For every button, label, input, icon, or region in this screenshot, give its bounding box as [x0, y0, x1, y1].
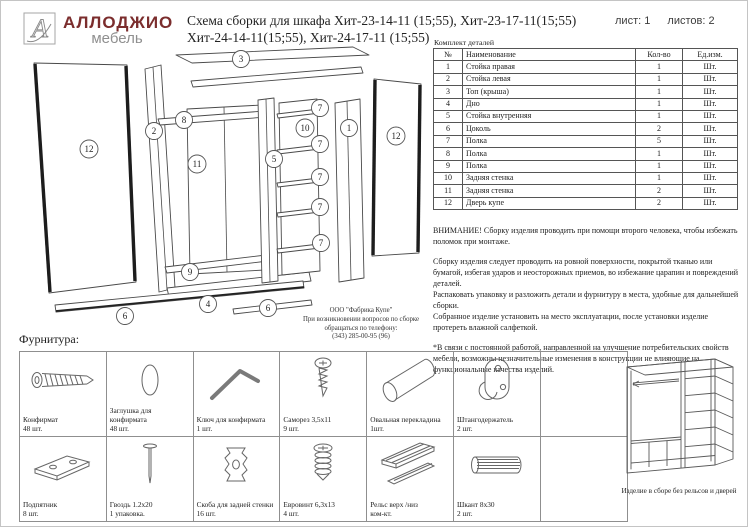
- back-wall-clip-icon: [194, 437, 280, 493]
- part-num: 5: [434, 110, 463, 122]
- part-unit: Шт.: [683, 135, 738, 147]
- hex-key-icon: [194, 352, 280, 408]
- hardware-cell: Подпятник 8 шт.: [20, 437, 107, 522]
- foot-plate-icon: [20, 437, 106, 493]
- manufacturer-contact: ООО "Фабрика Купе" При возникновении воп…: [289, 307, 433, 342]
- col-qty: Кол-во: [636, 49, 683, 61]
- parts-table-section: Комплект деталей № Наименование Кол-во Е…: [433, 38, 739, 210]
- part-name: Дно: [463, 98, 636, 110]
- rod-holder-icon: [454, 352, 540, 408]
- svg-text:8: 8: [182, 115, 187, 125]
- callout-7e: 7: [313, 235, 330, 252]
- part-name: Стойка внутренняя: [463, 110, 636, 122]
- svg-text:7: 7: [318, 103, 323, 113]
- part-name: Задняя стенка: [463, 172, 636, 184]
- assembled-view-caption: Изделие в сборе без рельсов и дверей: [609, 487, 748, 495]
- part-qty: 2: [636, 123, 683, 135]
- hardware-cell: Гвоздь 1.2х20 1 упаковка.: [106, 437, 193, 522]
- part-num: 6: [434, 123, 463, 135]
- svg-text:7: 7: [318, 139, 323, 149]
- part-name: Полка: [463, 148, 636, 160]
- part-num: 3: [434, 86, 463, 98]
- part-num: 4: [434, 98, 463, 110]
- part-unit: Шт.: [683, 98, 738, 110]
- part-name: Полка: [463, 135, 636, 147]
- notice-3: Собранное изделие установить на место эк…: [433, 311, 740, 333]
- part-unit: Шт.: [683, 148, 738, 160]
- callout-7b: 7: [312, 136, 329, 153]
- hardware-row: Конфирмат 48 шт. Заглушка для конфирмата…: [20, 352, 628, 437]
- part-name: Дверь купе: [463, 197, 636, 209]
- assembled-wardrobe-sketch: [619, 353, 747, 485]
- manufacturer-note: При возникновении вопросов по сборке: [289, 316, 433, 325]
- hardware-cell: Саморез 3,5х11 9 шт.: [280, 352, 367, 437]
- part-qty: 1: [636, 160, 683, 172]
- part-num: 9: [434, 160, 463, 172]
- sheet-info: лист: 1 листов: 2: [615, 15, 741, 27]
- part-name: Стойка правая: [463, 61, 636, 73]
- part-unit: Шт.: [683, 185, 738, 197]
- svg-text:7: 7: [319, 238, 324, 248]
- part-name: Стойка левая: [463, 73, 636, 85]
- callout-11: 11: [188, 155, 206, 173]
- callout-10: 10: [296, 119, 314, 137]
- part-qty: 5: [636, 135, 683, 147]
- euro-screw-icon: [280, 437, 366, 493]
- callout-7d: 7: [312, 199, 329, 216]
- part-qty: 1: [636, 148, 683, 160]
- table-row: 10Задняя стенка1Шт.: [434, 172, 738, 184]
- brand-mark-icon: А: [23, 12, 57, 46]
- brand-name: АЛЛОДЖИО: [63, 14, 171, 31]
- title-line-1: Схема сборки для шкафа Хит-23-14-11 (15;…: [187, 13, 587, 30]
- hardware-cell-empty: [540, 352, 627, 437]
- part-unit: Шт.: [683, 172, 738, 184]
- part-qty: 1: [636, 73, 683, 85]
- col-unit: Ед.изм.: [683, 49, 738, 61]
- svg-text:9: 9: [188, 267, 193, 277]
- sheets-total: листов: 2: [667, 15, 714, 27]
- part-num: 2: [434, 73, 463, 85]
- table-row: 12Дверь купе2Шт.: [434, 197, 738, 209]
- part-unit: Шт.: [683, 73, 738, 85]
- hardware-section-title: Фурнитура:: [19, 332, 79, 347]
- svg-text:6: 6: [266, 303, 271, 313]
- part-qty: 1: [636, 110, 683, 122]
- svg-text:6: 6: [123, 311, 128, 321]
- confirmat-screw-icon: [20, 352, 106, 408]
- col-name: Наименование: [463, 49, 636, 61]
- part-unit: Шт.: [683, 123, 738, 135]
- part-qty: 2: [636, 185, 683, 197]
- part-qty: 1: [636, 172, 683, 184]
- col-number: №: [434, 49, 463, 61]
- notice-2: Распаковать упаковку и разложить детали …: [433, 289, 740, 311]
- table-row: 9Полка1Шт.: [434, 160, 738, 172]
- callout-8: 8: [176, 112, 193, 129]
- callout-9: 9: [182, 264, 199, 281]
- part-qty: 1: [636, 86, 683, 98]
- part-qty: 1: [636, 98, 683, 110]
- part-num: 11: [434, 185, 463, 197]
- warning-text: ВНИМАНИЕ! Сборку изделия проводить при п…: [433, 225, 740, 247]
- hardware-row: Подпятник 8 шт. Гвоздь 1.2х20 1 упаковка…: [20, 437, 628, 522]
- table-row: 8Полка1Шт.: [434, 148, 738, 160]
- small-screw-icon: [280, 352, 366, 408]
- part-unit: Шт.: [683, 61, 738, 73]
- callout-6b: 6: [260, 300, 277, 317]
- table-row: 6Цоколь2Шт.: [434, 123, 738, 135]
- callout-12-right: 12: [387, 127, 405, 145]
- svg-text:2: 2: [152, 126, 157, 136]
- dowel-icon: [454, 437, 540, 493]
- callout-1: 1: [341, 120, 358, 137]
- assembly-instruction-sheet: А АЛЛОДЖИО мебель Схема сборки для шкафа…: [0, 0, 748, 527]
- part-num: 10: [434, 172, 463, 184]
- part-unit: Шт.: [683, 86, 738, 98]
- part-num: 7: [434, 135, 463, 147]
- table-row: 4Дно1Шт.: [434, 98, 738, 110]
- confirmat-cap-icon: [107, 352, 193, 408]
- svg-text:12: 12: [392, 131, 401, 141]
- part-num: 12: [434, 197, 463, 209]
- callout-5: 5: [266, 151, 283, 168]
- manufacturer-note2: обращаться по телефону:: [289, 325, 433, 334]
- manufacturer-phone: (343) 285-00-95 (96): [289, 333, 433, 342]
- svg-text:1: 1: [347, 123, 352, 133]
- hardware-cell: Евровинт 6,3х13 4 шт.: [280, 437, 367, 522]
- notice-1: Сборку изделия следует проводить на ровн…: [433, 256, 740, 289]
- hardware-cell: Заглушка для конфирмата 48 шт.: [106, 352, 193, 437]
- nail-icon: [107, 437, 193, 493]
- table-row: 1Стойка правая1Шт.: [434, 61, 738, 73]
- callout-7c: 7: [312, 169, 329, 186]
- hardware-cell: Рельс верх /низ ком-кт.: [367, 437, 454, 522]
- part-name: Задняя стенка: [463, 185, 636, 197]
- hardware-cell: Скоба для задней стенки 16 шт.: [193, 437, 280, 522]
- part-name: Цоколь: [463, 123, 636, 135]
- svg-text:5: 5: [272, 154, 277, 164]
- part-name: Топ (крыша): [463, 86, 636, 98]
- sheet-number: лист: 1: [615, 15, 650, 27]
- exploded-assembly-diagram: 3 12 2 8 11 9 4 6 6 5 10 1 7 7 7 7 7 12: [15, 45, 435, 337]
- manufacturer-name: ООО "Фабрика Купе": [289, 307, 433, 316]
- table-row: 7Полка5Шт.: [434, 135, 738, 147]
- hardware-cell-empty: [540, 437, 627, 522]
- part-num: 1: [434, 61, 463, 73]
- table-header-row: № Наименование Кол-во Ед.изм.: [434, 49, 738, 61]
- svg-text:7: 7: [318, 172, 323, 182]
- table-row: 5Стойка внутренняя1Шт.: [434, 110, 738, 122]
- table-row: 2Стойка левая1Шт.: [434, 73, 738, 85]
- part-unit: Шт.: [683, 197, 738, 209]
- part-top-panel: [176, 47, 369, 63]
- hardware-grid: Конфирмат 48 шт. Заглушка для конфирмата…: [19, 351, 628, 522]
- hardware-cell: Штангодержатель 2 шт.: [453, 352, 540, 437]
- svg-text:11: 11: [193, 159, 202, 169]
- svg-text:4: 4: [206, 299, 211, 309]
- table-row: 3Топ (крыша)1Шт.: [434, 86, 738, 98]
- part-num: 8: [434, 148, 463, 160]
- part-unit: Шт.: [683, 160, 738, 172]
- brand-block: АЛЛОДЖИО мебель: [63, 14, 171, 48]
- part-back-panel-large: [187, 105, 265, 274]
- svg-text:10: 10: [301, 123, 311, 133]
- svg-text:7: 7: [318, 202, 323, 212]
- callout-12-left: 12: [80, 140, 98, 158]
- callout-7a: 7: [312, 100, 329, 117]
- svg-text:3: 3: [239, 54, 244, 64]
- part-oval-rod: [191, 67, 363, 87]
- hardware-cell: Овальная перекладина 1шт.: [367, 352, 454, 437]
- part-name: Полка: [463, 160, 636, 172]
- rails-icon: [367, 437, 453, 493]
- callout-3: 3: [233, 51, 250, 68]
- callout-4: 4: [200, 296, 217, 313]
- svg-text:12: 12: [85, 144, 94, 154]
- hardware-cell: Шкант 8х30 2 шт.: [453, 437, 540, 522]
- table-row: 11Задняя стенка2Шт.: [434, 185, 738, 197]
- part-qty: 1: [636, 61, 683, 73]
- part-door-right: [372, 79, 421, 256]
- hardware-cell: Конфирмат 48 шт.: [20, 352, 107, 437]
- part-qty: 2: [636, 197, 683, 209]
- part-unit: Шт.: [683, 110, 738, 122]
- hardware-cell: Ключ для конфирмата 1 шт.: [193, 352, 280, 437]
- parts-table: № Наименование Кол-во Ед.изм. 1Стойка пр…: [433, 48, 738, 210]
- oval-rod-icon: [367, 352, 453, 408]
- callout-2: 2: [146, 123, 163, 140]
- parts-table-caption: Комплект деталей: [434, 38, 739, 47]
- callout-6a: 6: [117, 308, 134, 325]
